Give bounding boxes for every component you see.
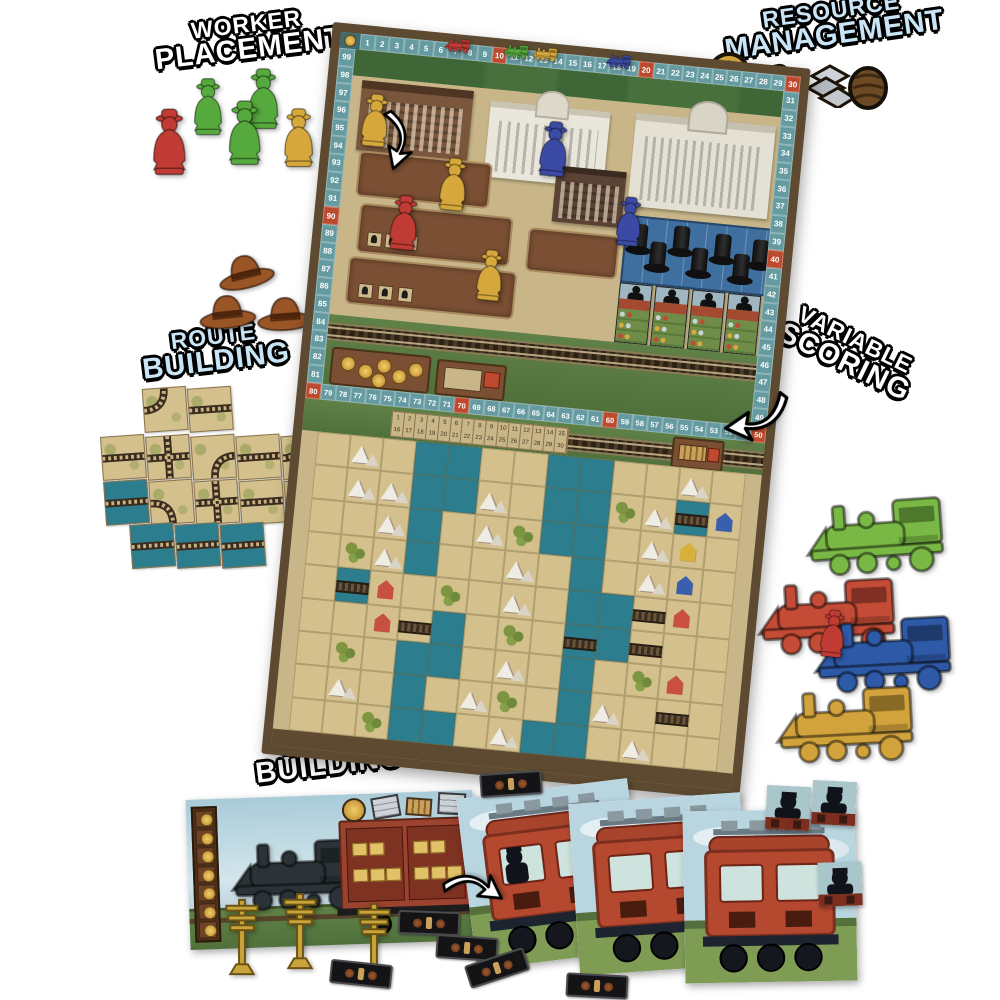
cargo-crate (353, 869, 368, 883)
product-photo-canvas: { "callouts":{ "worker_placement":{"line… (0, 0, 1000, 1000)
map-cell-water (559, 656, 595, 692)
reward-dot (697, 341, 702, 346)
map-cell-water (446, 444, 482, 480)
telegraph-pole-miniature (222, 896, 262, 978)
score-cell-24: 24 (697, 67, 713, 84)
supply-tile (434, 359, 507, 402)
green-worker-meeple (222, 98, 267, 166)
map-cell-mountain (371, 537, 407, 573)
map-cell-desert (601, 560, 637, 596)
map-cell-track-bridge (674, 500, 710, 536)
map-cell-desert (305, 531, 341, 567)
barrel-icon (518, 778, 528, 788)
barrel-icon (502, 959, 513, 970)
gold-coin (408, 362, 424, 378)
map-cell-water (387, 707, 423, 743)
blue-worker-meeple (610, 193, 650, 248)
score-cell-91: 91 (324, 189, 342, 208)
map-cell-desert (644, 464, 680, 500)
passenger-tile (811, 780, 857, 826)
worker-chip (397, 287, 413, 303)
map-cell-desert (697, 603, 733, 639)
worker-chip (377, 285, 393, 301)
red-worker-meeple (146, 106, 193, 176)
score-cell-61: 61 (587, 410, 603, 427)
contract-card (722, 293, 761, 356)
map-cell-desert (509, 484, 545, 520)
cargo-crate (369, 842, 384, 856)
coin-track-cell (197, 884, 216, 901)
map-cell-red-station (364, 604, 400, 640)
map-cell-scrub (608, 494, 644, 530)
score-cell-35: 35 (775, 162, 793, 181)
reward-dot (661, 338, 666, 343)
map-cell-desert (526, 653, 562, 689)
map-cell-desert (440, 511, 476, 547)
map-cell-water (430, 610, 466, 646)
map-cell-desert (604, 527, 640, 563)
route-tile-track-art (130, 523, 175, 568)
map-cell-water (565, 590, 601, 626)
map-cell-desert (331, 601, 367, 637)
map-cell-desert (535, 554, 571, 590)
score-cell-77: 77 (350, 387, 366, 404)
reward-dot (690, 340, 695, 345)
map-cell-desert (703, 537, 739, 573)
score-cell-99: 99 (338, 48, 356, 67)
barrel-icon (345, 968, 355, 978)
score-cell-84: 84 (312, 312, 330, 331)
supply-tile-art (443, 367, 483, 393)
route-tile-track-art (191, 435, 236, 480)
passenger-tile (817, 861, 863, 907)
pointer-arrow-variable-scoring (715, 382, 801, 460)
map-cell-mountain (641, 497, 677, 533)
map-cell-track-bridge (562, 623, 598, 659)
score-cell-86: 86 (315, 277, 333, 296)
blue-score-marker (604, 52, 633, 71)
goods-strip-tile (479, 770, 543, 798)
map-cell-water (519, 719, 555, 755)
resource-icon-wood (405, 797, 432, 817)
map-cell-desert (479, 448, 515, 484)
score-cell-27: 27 (741, 71, 757, 88)
yellow-worker-meeple (278, 106, 319, 168)
map-cell-track (631, 596, 667, 632)
map-cell-water (413, 441, 449, 477)
goods-strip-tile (565, 972, 628, 999)
route-tile-bridge (103, 479, 150, 526)
map-cell-water (443, 478, 479, 514)
bottle-icon (594, 980, 601, 992)
map-cell-desert (400, 574, 436, 610)
score-cell-80: 80 (305, 382, 321, 399)
map-cell-water (427, 643, 463, 679)
map-cell-red-station (664, 600, 700, 636)
yellow-worker-meeple (432, 154, 475, 213)
route-tile-straight (238, 478, 285, 525)
reward-dot (735, 323, 740, 328)
map-cell-scrub (489, 683, 525, 719)
barrel-icon (495, 780, 505, 790)
green-score-marker (501, 42, 530, 61)
map-cell-mountain (473, 514, 509, 550)
map-cell-desert (710, 470, 746, 506)
score-cell-1: 1 (359, 34, 375, 51)
bottle-icon (426, 917, 432, 929)
score-cell-60: 60 (602, 411, 618, 428)
map-cell-mountain (377, 471, 413, 507)
route-tile-track-art (236, 435, 281, 480)
gold-coin (201, 832, 214, 845)
map-cell-desert (687, 702, 723, 738)
coin-track-cell (197, 866, 216, 883)
map-cell-desert (311, 465, 347, 501)
score-cell-36: 36 (773, 179, 791, 198)
goods-strip-tile (398, 910, 461, 936)
reward-dot (620, 311, 625, 316)
score-cell-2: 2 (374, 35, 390, 52)
score-cell-57: 57 (646, 416, 662, 433)
map-cell-water (598, 593, 634, 629)
score-cell-68: 68 (483, 400, 499, 417)
map-cell-desert (466, 580, 502, 616)
red-worker-meeple (813, 606, 852, 659)
map-cell-desert (532, 587, 568, 623)
route-tile-track-art (146, 435, 191, 480)
reward-dot (626, 323, 631, 328)
barrel-icon (604, 982, 613, 991)
reward-dot (624, 334, 629, 339)
route-tile-straight (187, 386, 234, 433)
barrel-icon (436, 919, 445, 928)
score-cell-70: 70 (454, 397, 470, 414)
map-cell-desert (693, 636, 729, 672)
reward-dot (619, 322, 624, 327)
score-cell-21: 21 (653, 63, 669, 80)
map-cell-mountain (618, 729, 654, 765)
coin-track-cell (195, 810, 214, 827)
map-cell-desert (289, 697, 325, 733)
score-cell-79: 79 (320, 384, 336, 401)
map-cell-desert (700, 570, 736, 606)
score-cell-42: 42 (763, 285, 781, 304)
score-cell-23: 23 (682, 65, 698, 82)
bottle-icon (464, 942, 471, 954)
route-tile-track-art (175, 523, 220, 568)
map-cell-desert (522, 686, 558, 722)
cargo-crate (370, 868, 385, 882)
cargo-crate (352, 843, 367, 857)
score-cell-73: 73 (409, 392, 425, 409)
score-cell-44: 44 (759, 320, 777, 339)
passenger-tile (765, 785, 811, 831)
map-cell-mountain (493, 650, 529, 686)
score-cell-75: 75 (379, 389, 395, 406)
route-tile-track-art (239, 479, 284, 524)
score-cell-82: 82 (308, 347, 326, 366)
map-cell-desert (585, 726, 621, 762)
map-cell-desert (463, 613, 499, 649)
map-cell-desert (470, 547, 506, 583)
contract-card (650, 286, 689, 349)
reward-dot (662, 327, 667, 332)
gold-coin (391, 368, 407, 384)
map-cell-scrub (496, 617, 532, 653)
map-cell-desert (341, 501, 377, 537)
reward-dot (656, 315, 661, 320)
red-score-marker (442, 36, 471, 55)
score-cell-31: 31 (782, 91, 800, 110)
contract-card (686, 289, 725, 352)
factory-windows (558, 181, 620, 224)
map-cell-scrub (624, 663, 660, 699)
map-cell-desert (437, 544, 473, 580)
map-cell-desert (308, 498, 344, 534)
score-cell-33: 33 (778, 126, 796, 145)
red-goods-chip (707, 448, 720, 463)
route-tile-track-art (104, 480, 149, 525)
map-cell-mountain (634, 563, 670, 599)
route-tile-track-art (194, 480, 239, 525)
grand-capitol-windows (639, 137, 762, 212)
route-tile-track-art (143, 387, 188, 432)
score-cell-100 (340, 32, 361, 50)
score-cell-32: 32 (780, 109, 798, 128)
score-cell-16: 16 (579, 55, 595, 72)
reward-dot (654, 337, 659, 342)
contract-card (614, 282, 653, 345)
score-cell-66: 66 (513, 403, 529, 420)
reward-dot (617, 333, 622, 338)
score-cell-55: 55 (676, 419, 692, 436)
score-cell-40: 40 (766, 250, 784, 269)
score-cell-65: 65 (528, 404, 544, 421)
blue-worker-meeple (532, 117, 576, 178)
gold-coin (200, 813, 213, 826)
score-cell-30: 30 (785, 75, 801, 92)
bottle-icon (508, 778, 515, 790)
passenger-tile-art (765, 785, 811, 831)
reward-dot (663, 316, 668, 321)
map-cell-mountain (502, 550, 538, 586)
map-cell-scrub (355, 703, 391, 739)
map-cell-desert (358, 670, 394, 706)
score-cell-39: 39 (768, 232, 786, 251)
reward-dot (733, 345, 738, 350)
score-cell-87: 87 (317, 259, 335, 278)
barrel-icon (413, 918, 422, 927)
score-cell-71: 71 (439, 395, 455, 412)
map-cell-water (542, 487, 578, 523)
cowboy-hat-piece (194, 289, 260, 333)
map-cell-desert (651, 732, 687, 768)
reward-dot (698, 330, 703, 335)
score-cell-43: 43 (761, 303, 779, 322)
bottle-icon (492, 961, 501, 974)
score-cell-37: 37 (771, 197, 789, 216)
map-cell-mountain (348, 435, 384, 471)
cargo-crate (414, 867, 429, 881)
goods-barrel-token (844, 64, 892, 112)
coin-track-cell (195, 829, 214, 846)
score-cell-41: 41 (764, 267, 782, 286)
passenger-tile-art (811, 780, 857, 826)
map-cell-desert (295, 631, 331, 667)
score-cell-38: 38 (770, 215, 788, 234)
map-cell-desert (684, 736, 720, 772)
map-cell-red-station (657, 666, 693, 702)
map-cell-desert (292, 664, 328, 700)
score-cell-85: 85 (314, 294, 332, 313)
map-cell-mountain (476, 481, 512, 517)
map-cell-water (552, 723, 588, 759)
gold-coin (376, 358, 392, 374)
coin-track-cell (199, 922, 218, 939)
telegraph-pole-miniature (280, 890, 320, 972)
gold-coin (201, 850, 214, 863)
gold-coin (203, 887, 216, 900)
score-cell-95: 95 (331, 118, 349, 137)
map-cell-water (578, 457, 614, 493)
score-cell-62: 62 (572, 408, 588, 425)
route-tile-track-art (220, 523, 265, 568)
grand-capitol-building (627, 113, 775, 219)
map-cell-water (420, 710, 456, 746)
score-cell-94: 94 (329, 136, 347, 155)
map-cell-track (628, 630, 664, 666)
score-cell-98: 98 (336, 65, 354, 84)
coin-track-cell (196, 847, 215, 864)
map-cell-mountain (325, 667, 361, 703)
route-tile-track-art (149, 480, 194, 525)
map-cell-mountain (499, 584, 535, 620)
map-cell-water (391, 673, 427, 709)
gold-coin (340, 355, 356, 371)
gold-locomotive (764, 678, 926, 768)
route-tile-track-art (101, 435, 146, 480)
score-cell-9: 9 (477, 45, 493, 62)
score-cell-69: 69 (468, 398, 484, 415)
map-cell-water (572, 524, 608, 560)
score-cell-59: 59 (617, 413, 633, 430)
barrel-icon (480, 966, 491, 977)
map-cell-desert (424, 677, 460, 713)
map-cell-mountain (374, 504, 410, 540)
score-cell-25: 25 (711, 68, 727, 85)
map-cell-desert (512, 451, 548, 487)
score-cell-92: 92 (326, 171, 344, 190)
score-cell-76: 76 (365, 388, 381, 405)
barrel-icon (581, 981, 590, 990)
map-cell-desert (611, 461, 647, 497)
map-cell-red-station (368, 571, 404, 607)
score-cell-34: 34 (776, 144, 794, 163)
worker-chip (357, 283, 373, 299)
map-cell-water (568, 557, 604, 593)
score-cell-78: 78 (335, 385, 351, 402)
red-worker-meeple (382, 191, 426, 252)
map-cell-water (575, 490, 611, 526)
score-cell-28: 28 (755, 73, 771, 90)
barrel-icon (367, 970, 377, 980)
map-cell-blue-station (706, 503, 742, 539)
map-cell-water (595, 626, 631, 662)
score-cell-3: 3 (389, 37, 405, 54)
map-cell-desert (381, 438, 417, 474)
map-cell-scrub (338, 534, 374, 570)
map-cell-track (397, 607, 433, 643)
map-cell-desert (315, 431, 351, 467)
turn-cell-15: 15 (556, 428, 569, 441)
map-cell-desert (690, 669, 726, 705)
barrel-icon (474, 944, 484, 954)
map-cell-yellow-station (670, 533, 706, 569)
gold-coin (203, 906, 216, 919)
turn-cell-30: 30 (554, 440, 567, 453)
map-cell-track (654, 699, 690, 735)
reward-dot (699, 319, 704, 324)
map-cell-water (394, 640, 430, 676)
reward-dot (728, 322, 733, 327)
green-locomotive (793, 489, 956, 582)
route-tile-bridge (129, 522, 176, 569)
map-cell-desert (298, 597, 334, 633)
score-cell-29: 29 (770, 74, 786, 91)
route-tile-bridge (174, 522, 221, 569)
map-cell-water (539, 520, 575, 556)
score-cell-64: 64 (543, 405, 559, 422)
score-cell-58: 58 (632, 414, 648, 431)
map-cell-water (407, 508, 443, 544)
score-cell-81: 81 (307, 365, 325, 384)
coin-track-cell (198, 903, 217, 920)
map-cell-mountain (677, 467, 713, 503)
gold-coin (371, 372, 387, 388)
score-cell-90: 90 (322, 206, 340, 225)
route-tile-cross (145, 434, 192, 481)
map-area (289, 431, 746, 772)
score-cell-72: 72 (424, 394, 440, 411)
reward-dot (692, 318, 697, 323)
map-cell-desert (621, 696, 657, 732)
score-cell-5: 5 (418, 40, 434, 57)
barrel-icon (451, 942, 461, 952)
route-tile-straight (100, 434, 147, 481)
score-cell-22: 22 (667, 64, 683, 81)
worker-slot (525, 227, 621, 280)
score-cell-96: 96 (333, 101, 351, 120)
route-tile-track-art (188, 387, 233, 432)
route-tile-curve (142, 386, 189, 433)
map-cell-mountain (588, 693, 624, 729)
score-cell-56: 56 (661, 417, 677, 434)
gold-coin (202, 869, 215, 882)
score-cell-83: 83 (310, 329, 328, 348)
score-cell-20: 20 (638, 61, 654, 78)
map-cell-desert (661, 633, 697, 669)
yellow-worker-meeple (470, 246, 511, 303)
map-cell-desert (529, 620, 565, 656)
reward-dot (627, 312, 632, 317)
map-cell-mountain (486, 716, 522, 752)
map-cell-desert (322, 700, 358, 736)
route-tile-curve (148, 479, 195, 526)
route-tile-straight (235, 433, 282, 480)
gold-coin (204, 925, 217, 938)
map-cell-mountain (344, 468, 380, 504)
score-cell-15: 15 (565, 54, 581, 71)
